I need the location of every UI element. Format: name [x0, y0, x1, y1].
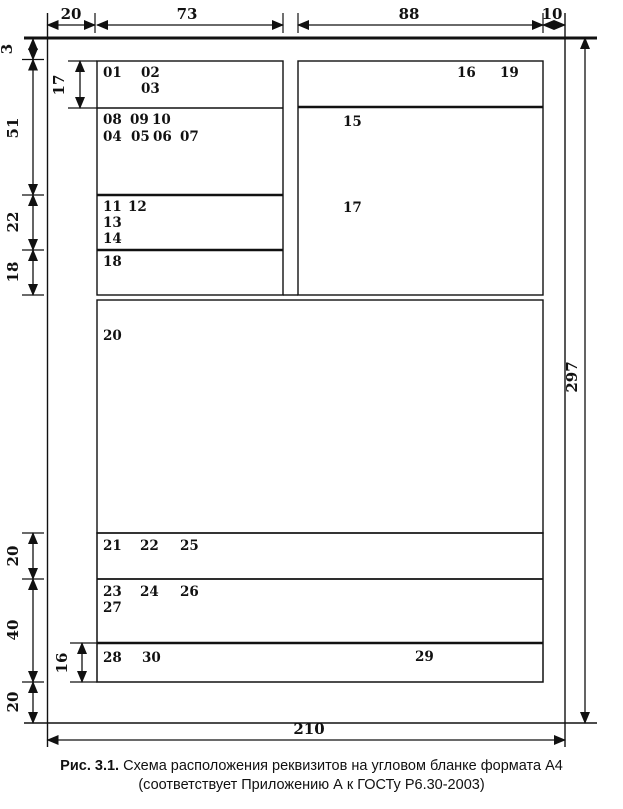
requisite-26: 26: [180, 584, 199, 600]
requisite-08: 08: [103, 112, 122, 128]
requisite-24: 24: [140, 584, 159, 600]
dimension-labels: 20 73 88 10 3 51 22 18 20 40 20 17 16 29…: [0, 5, 581, 738]
requisite-19: 19: [500, 65, 519, 81]
dim-label-297: 297: [563, 361, 581, 392]
dim-label-73: 73: [177, 5, 198, 23]
dim-label-20b: 20: [4, 692, 22, 713]
dim-label-10: 10: [542, 5, 563, 23]
requisite-13: 13: [103, 215, 122, 231]
requisite-06: 06: [153, 129, 172, 145]
caption-line-2: (соответствует Приложению А к ГОСТу Р6.3…: [0, 776, 623, 795]
right-address-block: [298, 61, 543, 295]
left-stamp-block: [97, 61, 283, 295]
requisite-10: 10: [152, 112, 171, 128]
requisite-22: 22: [140, 538, 159, 554]
bottom-stack-box: [97, 533, 543, 682]
requisite-03: 03: [141, 81, 160, 97]
requisite-07: 07: [180, 129, 199, 145]
dim-label-3: 3: [0, 44, 16, 54]
requisite-09: 09: [130, 112, 149, 128]
requisite-02: 02: [141, 65, 160, 81]
requisite-14: 14: [103, 231, 122, 247]
dim-label-210: 210: [293, 720, 324, 738]
caption-title: Схема расположения реквизитов на угловом…: [119, 758, 563, 774]
dim-label-16: 16: [53, 653, 71, 674]
requisite-27: 27: [103, 600, 122, 616]
dim-label-20a: 20: [4, 546, 22, 567]
dim-label-20-top: 20: [61, 5, 82, 23]
layout-scheme-diagram: 20 73 88 10 3 51 22 18 20 40 20 17 16 29…: [0, 0, 623, 755]
dim-label-22: 22: [4, 212, 22, 233]
requisite-numbers: 01 02 03 08 09 10 04 05 06 07 11 12 13 1…: [103, 65, 519, 666]
dim-label-17: 17: [50, 75, 68, 96]
requisite-25: 25: [180, 538, 199, 554]
requisite-12: 12: [128, 199, 147, 215]
text-zone-box: [97, 300, 543, 533]
requisite-29: 29: [415, 649, 434, 665]
caption-line-1: Рис. 3.1. Схема расположения реквизитов …: [0, 757, 623, 776]
requisite-20: 20: [103, 328, 122, 344]
requisite-01: 01: [103, 65, 122, 81]
dim-label-88: 88: [399, 5, 420, 23]
requisite-zones: [97, 61, 543, 682]
dim-label-51: 51: [4, 118, 22, 139]
dim-label-18: 18: [4, 262, 22, 283]
requisite-15: 15: [343, 114, 362, 130]
requisite-28: 28: [103, 650, 122, 666]
requisite-05: 05: [131, 129, 150, 145]
figure-caption: Рис. 3.1. Схема расположения реквизитов …: [0, 757, 623, 795]
requisite-23: 23: [103, 584, 122, 600]
requisite-16: 16: [457, 65, 476, 81]
requisite-21: 21: [103, 538, 122, 554]
requisite-18: 18: [103, 254, 122, 270]
requisite-11: 11: [103, 199, 122, 215]
caption-figure-number: Рис. 3.1.: [60, 758, 119, 774]
requisite-17: 17: [343, 200, 362, 216]
dim-label-40: 40: [4, 620, 22, 641]
requisite-04: 04: [103, 129, 122, 145]
requisite-30: 30: [142, 650, 161, 666]
